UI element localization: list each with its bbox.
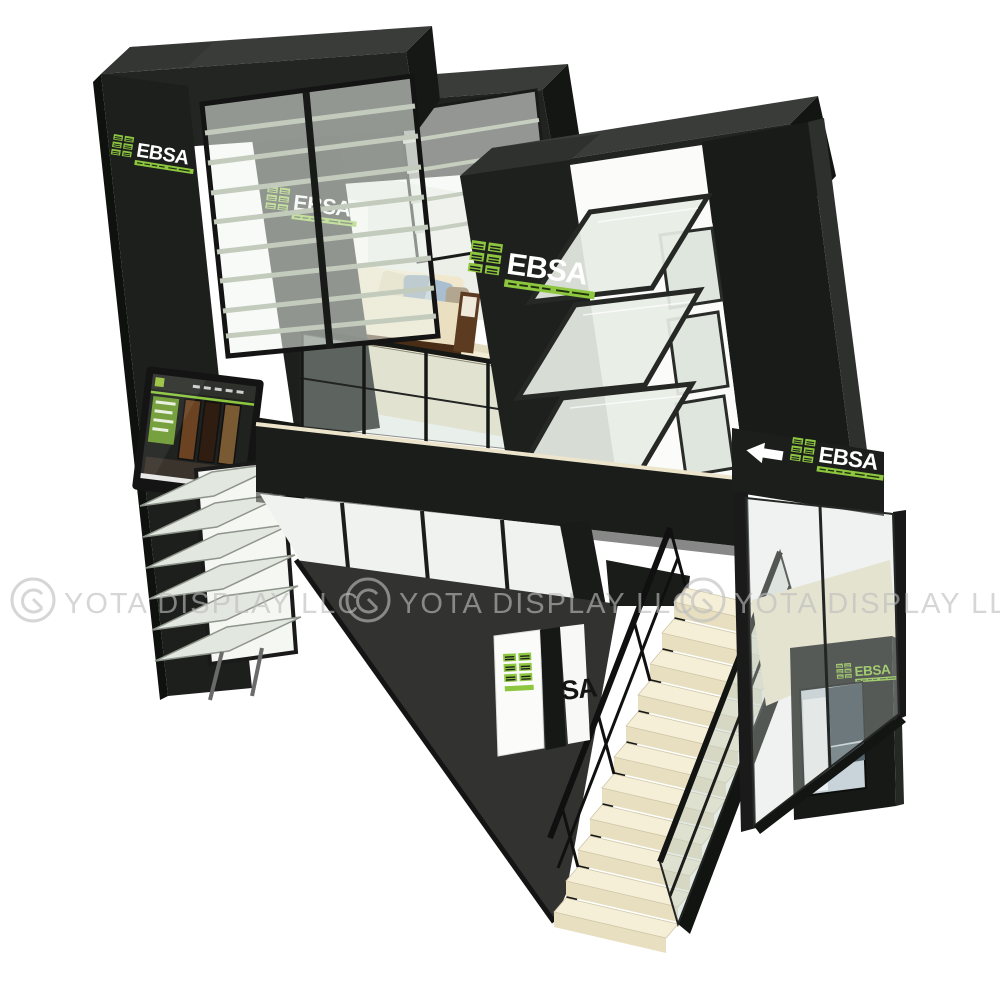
watermark-text: YOTA DISPLAY LLC: [734, 588, 1000, 620]
booth-render-canvas: EBSA: [0, 0, 1000, 1000]
booth-render: EBSA: [0, 0, 1000, 1000]
watermark-text: YOTA DISPLAY LLC: [64, 588, 360, 620]
ebsa-partial-text: SA: [559, 672, 598, 706]
ground-glass-room: EBSA: [733, 492, 906, 834]
watermark-text: YOTA DISPLAY LLC: [399, 588, 695, 620]
left-louvre-window: [202, 76, 438, 356]
ebsa-column: SA: [494, 624, 598, 756]
